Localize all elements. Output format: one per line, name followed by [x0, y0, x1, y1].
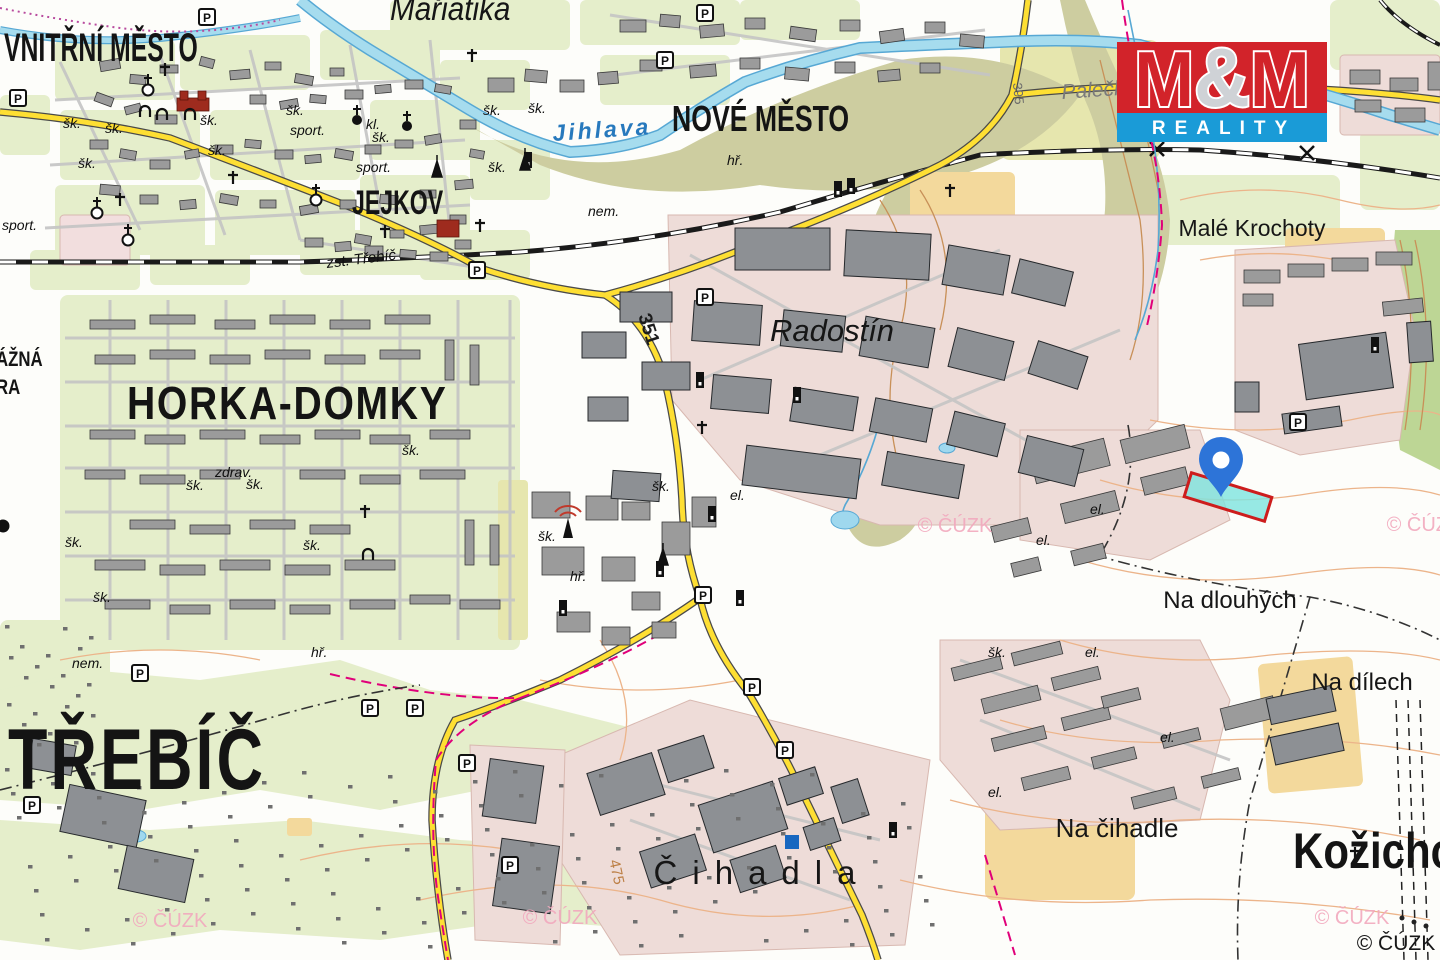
building: [840, 20, 860, 31]
parking-icon-letter: P: [748, 681, 756, 695]
allotment-hut: [319, 844, 324, 848]
building: [130, 520, 175, 529]
building: [130, 74, 147, 84]
location-pin-hole: [1213, 452, 1230, 469]
map-label: HORKA-DOMKY: [127, 378, 447, 430]
parking-icon: P: [697, 5, 713, 21]
parking-icon: P: [1290, 414, 1306, 430]
building: [445, 340, 454, 380]
parking-icon: P: [10, 90, 26, 106]
chimney-hole: [739, 600, 742, 604]
antenna-mast: [563, 518, 573, 538]
parking-icon-letter: P: [473, 264, 481, 278]
allotment-hut: [342, 941, 347, 945]
map-label: el.: [988, 784, 1003, 800]
allotment-hut: [382, 931, 387, 935]
chimney-icon: [736, 590, 744, 606]
allotment-hut: [365, 858, 370, 862]
allotment-hut: [485, 828, 490, 832]
allotment-hut: [125, 918, 130, 922]
allotment-hut: [724, 769, 729, 773]
building: [310, 525, 350, 534]
chimney-icon: [696, 372, 704, 388]
allotment-hut: [582, 881, 587, 885]
map-label: zdrav.: [214, 464, 252, 480]
building: [878, 69, 901, 82]
chimney-icon: [847, 178, 855, 194]
building: [200, 430, 245, 439]
parking-icon-letter: P: [701, 291, 709, 305]
industrial-hall: [588, 397, 628, 421]
chimney-icon: [559, 600, 567, 616]
allotment-hut: [519, 794, 524, 798]
building: [690, 64, 717, 78]
allotment-hut: [348, 785, 353, 789]
building: [460, 600, 500, 609]
building: [290, 605, 330, 614]
allotment-hut: [821, 822, 826, 826]
map-viewport[interactable]: { "logo": {"m1":"M","amp":"&","m2":"M","…: [0, 0, 1440, 960]
building: [90, 320, 135, 329]
allotment-hut: [502, 901, 507, 905]
map-label: el.: [730, 487, 745, 503]
building: [622, 502, 650, 520]
church-icon-circle: [143, 85, 154, 96]
map-label: nem.: [72, 655, 103, 671]
allotment-hut: [228, 815, 233, 819]
chimney-body: [736, 590, 744, 606]
chimney-body: [559, 600, 567, 616]
map-label: šk.: [488, 159, 506, 175]
chimney-hole: [850, 188, 853, 192]
building: [602, 627, 630, 645]
chimney-hole: [699, 382, 702, 386]
map-label: Na dlouhých: [1163, 587, 1296, 614]
allotment-hut: [78, 647, 83, 651]
allotment-hut: [827, 846, 832, 850]
allotment-hut: [764, 939, 769, 943]
building: [350, 600, 395, 609]
building: [90, 430, 135, 439]
allotment-hut: [399, 824, 404, 828]
allotment-hut: [593, 930, 598, 934]
parking-icon-letter: P: [203, 11, 211, 25]
chimney-hole: [837, 191, 840, 195]
allotment-hut: [331, 892, 336, 896]
allotment-hut: [536, 867, 541, 871]
map-label: TŘEBÍČ: [8, 711, 266, 808]
allotment-hut: [736, 817, 741, 821]
map-label: šk.: [483, 102, 501, 118]
building: [100, 184, 121, 196]
map-label: hř.: [570, 568, 586, 584]
map-canvas[interactable]: PPPPPPPPPPPPPPPP VNITŘNÍ MĚSTONOVÉ MĚSTO…: [0, 0, 1440, 960]
map-label: el.: [1036, 532, 1051, 548]
chimney-icon: [889, 822, 897, 838]
allotment-hut: [713, 900, 718, 904]
allotment-hut: [696, 827, 701, 831]
building: [305, 238, 323, 247]
building: [245, 139, 262, 148]
building: [925, 22, 945, 33]
building: [265, 350, 310, 359]
industrial-hall: [1407, 321, 1434, 363]
allotment-hut: [462, 911, 467, 915]
allotment-hut: [102, 821, 107, 825]
allotment-hut: [296, 927, 301, 931]
map-label: Na čihadle: [1056, 813, 1179, 843]
cuzk-watermark: © ČÚZK: [1315, 906, 1390, 929]
map-label: šk.: [78, 155, 96, 171]
allotment-hut: [924, 899, 929, 903]
building: [660, 14, 681, 28]
allotment-hut: [205, 898, 210, 902]
industrial-hall: [844, 230, 931, 280]
building: [455, 179, 474, 190]
parking-icon-letter: P: [366, 702, 374, 716]
chapel-dot: [352, 115, 362, 125]
industrial-hall: [692, 301, 763, 346]
parking-icon-letter: P: [661, 54, 669, 68]
allotment-hut: [24, 676, 29, 680]
chimney-body: [847, 178, 855, 194]
chimney-body: [889, 822, 897, 838]
map-label: 395: [1010, 82, 1027, 105]
allotment-hut: [907, 826, 912, 830]
map-label: šk.: [286, 102, 304, 118]
allotment-hut: [650, 813, 655, 817]
map-label: el.: [1160, 729, 1175, 745]
parking-icon: P: [744, 679, 760, 695]
building: [1395, 108, 1425, 122]
map-label: sport.: [2, 217, 37, 233]
cuzk-watermark: © ČÚZK: [523, 906, 598, 929]
map-label: šk.: [93, 589, 111, 605]
building: [330, 320, 370, 329]
map-label: RA: [0, 376, 20, 399]
building: [95, 355, 135, 364]
building: [490, 525, 499, 565]
map-label: šk.: [303, 537, 321, 553]
allotment-hut: [359, 834, 364, 838]
industrial-hall: [582, 332, 626, 358]
building: [1428, 62, 1440, 90]
map-label: hř.: [727, 152, 743, 168]
building: [150, 350, 195, 359]
building: [1390, 78, 1418, 91]
allotment-hut: [154, 859, 159, 863]
map-label: el.: [1090, 501, 1105, 517]
chapel-dot: [402, 121, 412, 131]
building: [745, 18, 765, 29]
allotment-hut: [804, 929, 809, 933]
industrial-hall: [735, 228, 830, 270]
parking-icon: P: [459, 755, 475, 771]
allotment-hut: [479, 804, 484, 808]
map-label: šk.: [402, 442, 420, 458]
allotment-hut: [616, 847, 621, 851]
allotment-hut: [87, 683, 92, 687]
allotment-hut: [302, 771, 307, 775]
allotment-hut: [211, 922, 216, 926]
parking-icon-letter: P: [701, 7, 709, 21]
allotment-hut: [873, 860, 878, 864]
chimney-icon: [793, 387, 801, 403]
map-label: sport.: [290, 122, 325, 138]
allotment-hut: [781, 832, 786, 836]
allotment-hut: [861, 812, 866, 816]
allotment-hut: [50, 685, 55, 689]
parking-icon: P: [697, 289, 713, 305]
cuzk-attribution: © ČÚZK: [1357, 932, 1435, 955]
allotment-hut: [131, 942, 136, 946]
allotment-hut: [40, 913, 45, 917]
building: [270, 315, 315, 324]
cuzk-watermark: © ČÚZK: [133, 909, 208, 932]
allotment-hut: [74, 879, 79, 883]
allotment-hut: [279, 854, 284, 858]
building: [215, 320, 255, 329]
allotment-hut: [867, 836, 872, 840]
chimney-hole: [711, 516, 714, 520]
cuzk-watermark: © ČÚZK: [918, 514, 993, 537]
building: [700, 24, 725, 38]
chimney-icon: [834, 181, 842, 197]
allotment-hut: [268, 805, 273, 809]
allotment-hut: [194, 849, 199, 853]
building: [140, 195, 158, 204]
allotment-hut: [188, 825, 193, 829]
allotment-hut: [5, 625, 10, 629]
building: [1355, 100, 1381, 112]
church-icon-circle: [123, 235, 134, 246]
building: [315, 430, 360, 439]
allotment-hut: [445, 838, 450, 842]
allotment-hut: [251, 912, 256, 916]
building: [460, 120, 476, 129]
chimney-body: [793, 387, 801, 403]
allotment-hut: [17, 816, 22, 820]
map-label: šk.: [208, 142, 226, 158]
chimney-body: [696, 372, 704, 388]
building: [220, 560, 270, 570]
allotment-hut: [542, 891, 547, 895]
map-label: šk.: [63, 115, 81, 131]
parking-icon-letter: P: [781, 744, 789, 758]
building: [960, 34, 985, 48]
allotment-hut: [810, 773, 815, 777]
allotment-hut: [108, 845, 113, 849]
allotment-hut: [884, 909, 889, 913]
building: [652, 622, 676, 638]
allotment-hut: [46, 654, 51, 658]
building: [1288, 264, 1324, 277]
church-icon-circle: [311, 195, 322, 206]
parking-icon-letter: P: [136, 667, 144, 681]
building: [265, 62, 281, 70]
allotment-hut: [473, 780, 478, 784]
allotment-hut: [291, 902, 296, 906]
allotment-hut: [878, 885, 883, 889]
map-label: šk.: [538, 528, 556, 544]
cuzk-watermark: © ČÚZK: [1387, 513, 1440, 536]
allotment-hut: [376, 907, 381, 911]
allotment-hut: [850, 943, 855, 947]
building: [230, 69, 251, 80]
building: [385, 315, 430, 324]
building: [488, 78, 514, 92]
building: [632, 592, 660, 610]
map-label: Mařiatika: [390, 0, 510, 27]
parking-icon: P: [657, 52, 673, 68]
allotment-hut: [918, 875, 923, 879]
allotment-hut: [428, 945, 433, 949]
parking-icon: P: [199, 9, 215, 25]
map-label: Čihadla: [654, 854, 871, 891]
church-icon-circle: [92, 208, 103, 219]
building: [150, 160, 170, 169]
allotment-hut: [690, 803, 695, 807]
building: [325, 355, 365, 364]
building: [420, 224, 439, 235]
allotment-hut: [844, 919, 849, 923]
parking-icon-letter: P: [699, 589, 707, 603]
building: [470, 345, 479, 385]
building: [405, 80, 423, 89]
building: [250, 520, 295, 529]
allotment-hut: [422, 921, 427, 925]
allotment-hut: [34, 889, 39, 893]
building: [380, 350, 420, 359]
allotment-hut: [9, 656, 14, 660]
allotment-hut: [35, 665, 40, 669]
building: [1011, 557, 1042, 577]
allotment-hut: [930, 923, 935, 927]
allotment-hut: [171, 932, 176, 936]
building: [90, 140, 108, 149]
building: [785, 67, 810, 81]
allotment-hut: [114, 869, 119, 873]
allotment-hut: [416, 897, 421, 901]
allotment-hut: [490, 853, 495, 857]
building: [375, 84, 392, 93]
chimney-hole: [1374, 347, 1377, 351]
allotment-hut: [610, 823, 615, 827]
building: [250, 95, 266, 104]
allotment-hut: [63, 627, 68, 631]
allotment-hut: [85, 928, 90, 932]
building: [455, 240, 471, 249]
map-label: JEJKOV: [352, 185, 444, 222]
parking-icon: P: [362, 700, 378, 716]
chimney-icon: [1371, 337, 1379, 353]
blue-square-symbol: [785, 835, 799, 849]
building: [420, 470, 465, 479]
allotment-hut: [28, 865, 33, 869]
allotment-hut: [239, 864, 244, 868]
industrial-hall: [711, 375, 772, 414]
allotment-hut: [89, 636, 94, 640]
parking-icon-letter: P: [463, 757, 471, 771]
allotment-hut: [199, 874, 204, 878]
allotment-hut: [76, 694, 81, 698]
allotment-hut: [405, 848, 410, 852]
building: [140, 475, 185, 484]
parking-icon: P: [695, 587, 711, 603]
allotment-hut: [530, 843, 535, 847]
allotment-hut: [513, 770, 518, 774]
map-label: Radostín: [770, 313, 894, 348]
building: [1376, 252, 1412, 265]
building: [1332, 258, 1368, 271]
building: [160, 565, 205, 575]
chimney-hole: [892, 832, 895, 836]
building: [345, 90, 363, 99]
building: [740, 58, 760, 69]
allotment-hut: [65, 705, 70, 709]
chimney-body: [708, 506, 716, 522]
chimney-body: [834, 181, 842, 197]
building: [310, 94, 327, 103]
allotment-hut: [439, 814, 444, 818]
building: [85, 470, 125, 479]
parking-icon: P: [407, 700, 423, 716]
allotment-hut: [68, 855, 73, 859]
map-label: NOVÉ MĚSTO: [672, 98, 849, 139]
allotment-hut: [553, 940, 558, 944]
building: [150, 315, 195, 324]
parking-icon: P: [777, 742, 793, 758]
allotment-hut: [679, 934, 684, 938]
industrial-hall: [482, 759, 544, 824]
parking-icon-letter: P: [1294, 416, 1302, 430]
building: [430, 430, 470, 439]
industrial-hall: [1299, 332, 1394, 400]
allotment-hut: [388, 775, 393, 779]
allotment-hut: [730, 793, 735, 797]
chimney-hole: [562, 610, 565, 614]
map-label: šk.: [186, 477, 204, 493]
map-label: šk.: [200, 112, 218, 128]
building: [1243, 294, 1273, 306]
chimney-body: [1371, 337, 1379, 353]
building: [920, 63, 940, 73]
parking-icon: P: [469, 262, 485, 278]
building: [305, 154, 322, 163]
building: [1350, 70, 1380, 84]
allotment-hut: [61, 674, 66, 678]
parking-icon-letter: P: [14, 92, 22, 106]
building: [275, 150, 293, 159]
allotment-hut: [336, 917, 341, 921]
building: [285, 565, 330, 575]
allotment-hut: [633, 920, 638, 924]
map-label: kl.: [366, 116, 380, 132]
map-label: Malé Krochoty: [1178, 215, 1326, 241]
allotment-hut: [7, 703, 12, 707]
building: [465, 520, 474, 565]
allotment-hut: [45, 938, 50, 942]
map-label: šk.: [988, 644, 1006, 660]
map-label: šk.: [528, 100, 546, 116]
map-label: šk.: [65, 534, 83, 550]
allotment-hut: [433, 790, 438, 794]
industrial-hall: [642, 362, 690, 390]
building: [260, 435, 300, 444]
allotment-hut: [770, 783, 775, 787]
building: [300, 470, 345, 479]
allotment-hut: [576, 857, 581, 861]
